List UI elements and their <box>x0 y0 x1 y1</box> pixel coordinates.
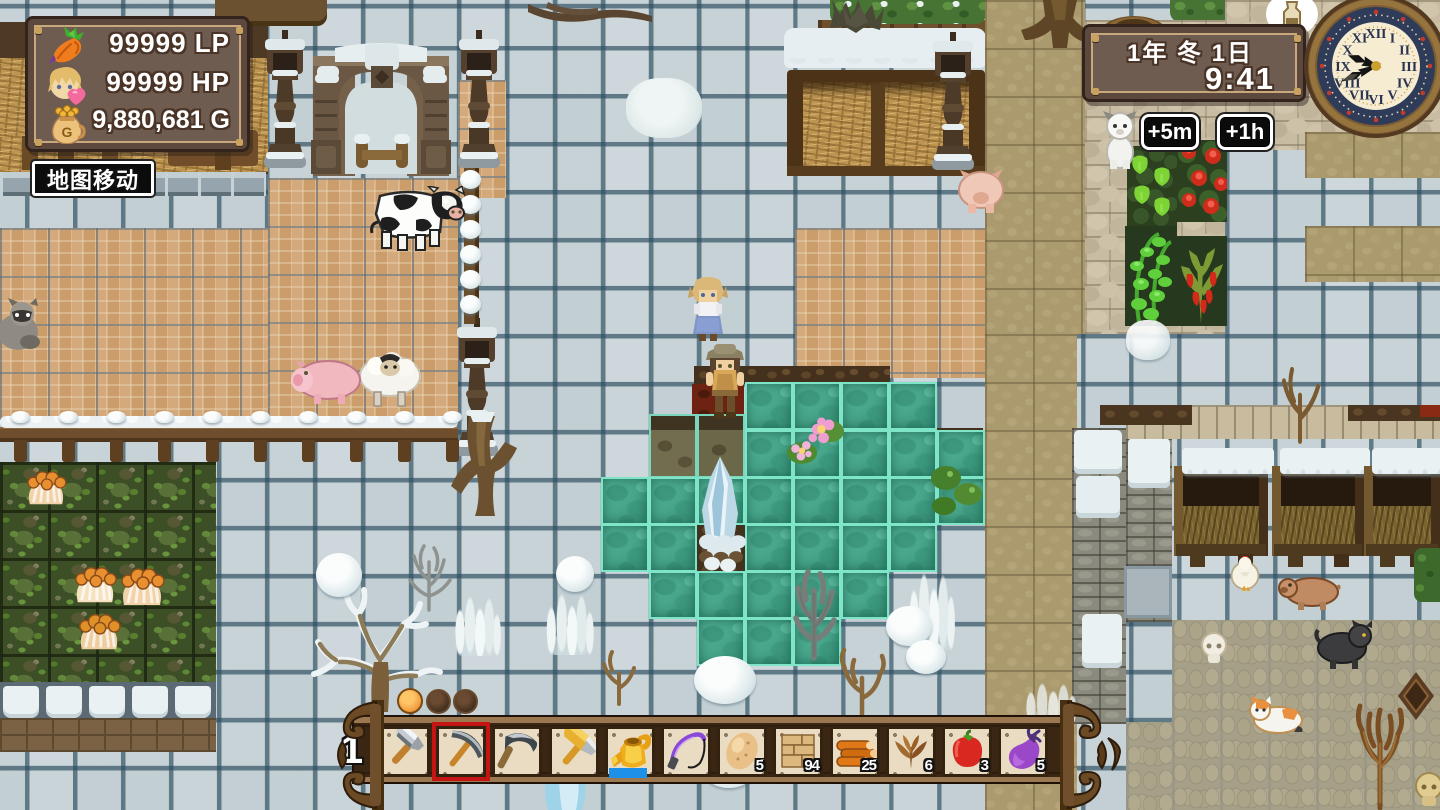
svg-text:VI: VI <box>1368 93 1384 108</box>
svg-text:V: V <box>1387 89 1397 104</box>
svg-text:IX: IX <box>1335 60 1351 75</box>
svg-text:I: I <box>1390 31 1395 46</box>
svg-text:III: III <box>1401 60 1417 75</box>
svg-text:II: II <box>1399 44 1410 59</box>
svg-text:XI: XI <box>1352 31 1368 46</box>
svg-text:XII: XII <box>1365 27 1386 42</box>
svg-text:IV: IV <box>1397 77 1413 92</box>
